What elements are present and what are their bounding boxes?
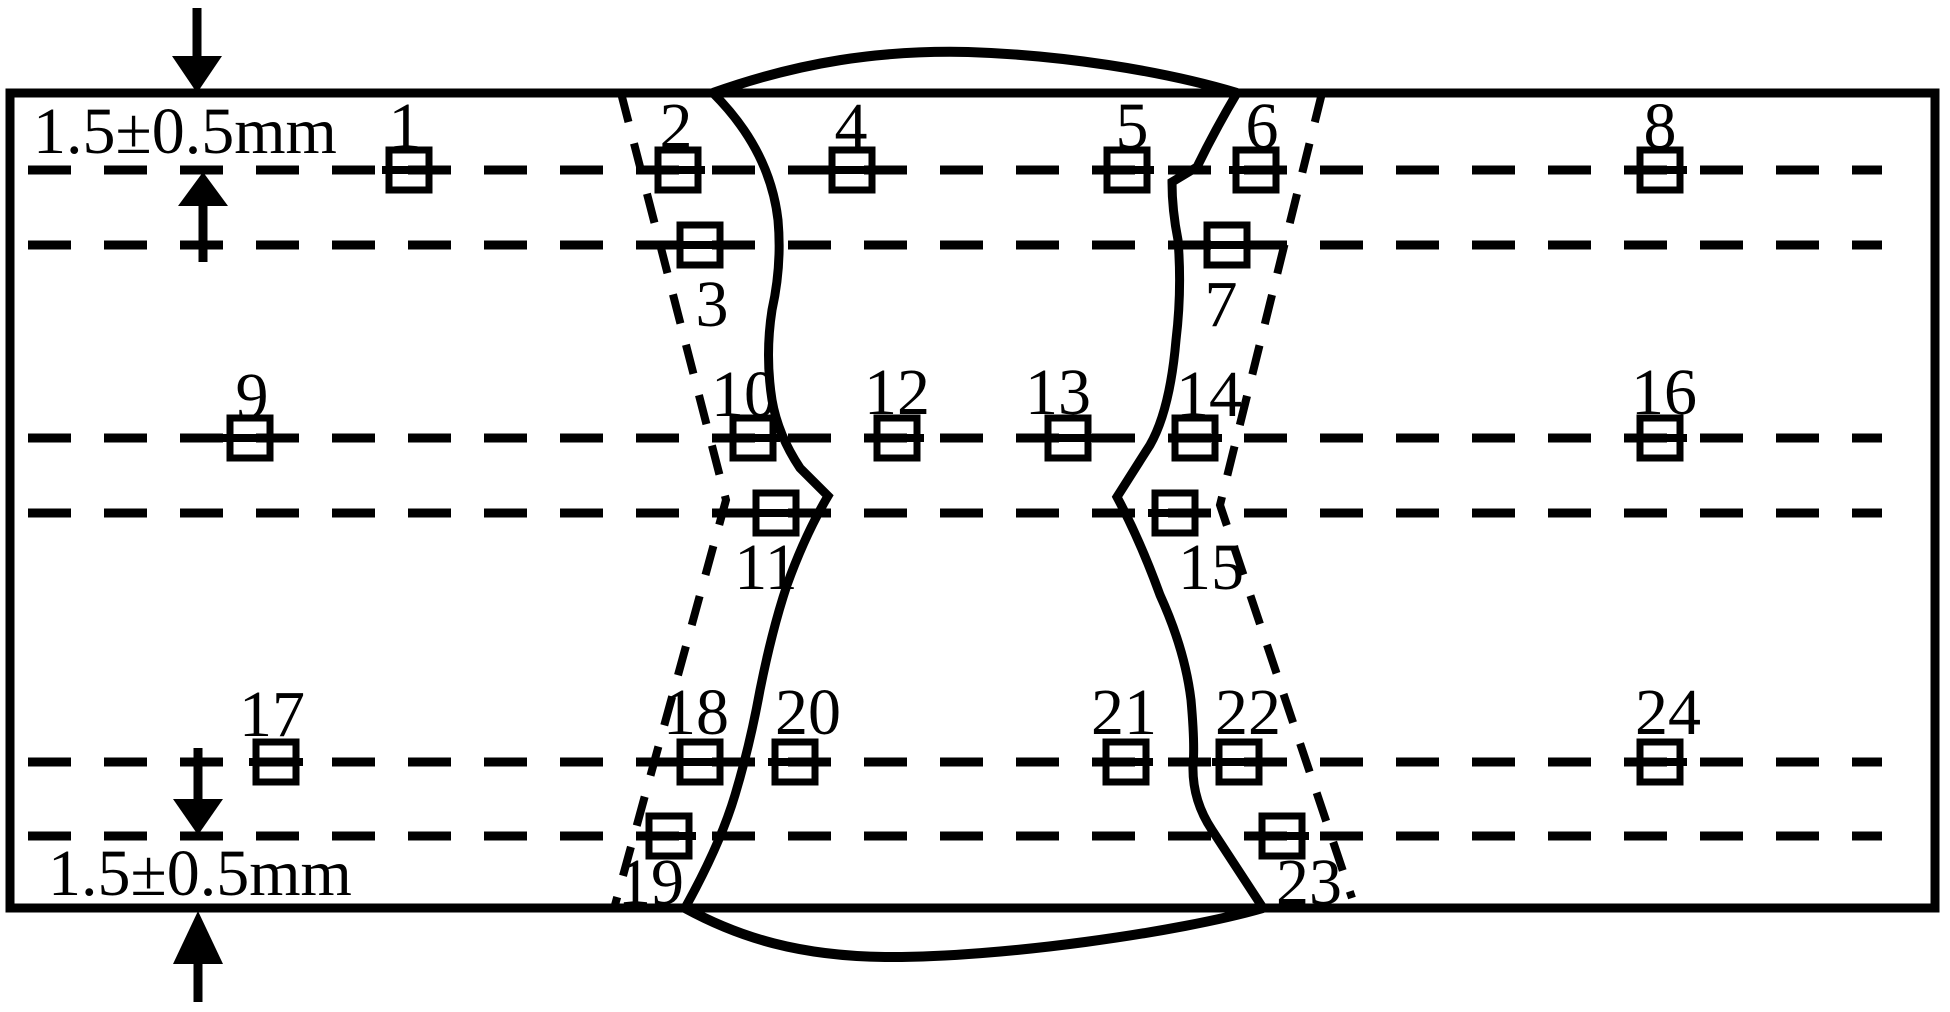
measurement-point: 10 — [711, 358, 780, 458]
measurement-point-label: 3 — [696, 268, 729, 341]
measurement-point-label: 18 — [663, 676, 729, 749]
measurement-point: 16 — [1631, 356, 1697, 458]
measurement-point: 12 — [864, 356, 930, 458]
measurement-point-label: 23 — [1276, 846, 1342, 919]
plate-outline — [10, 93, 1935, 908]
weld-cross-section-figure: 123456789101112131415161718192021222324 … — [0, 0, 1950, 1012]
measurement-point-label: 24 — [1635, 676, 1701, 749]
measurement-point: 6 — [1229, 90, 1283, 190]
measurement-point-label: 13 — [1025, 356, 1091, 429]
measurement-point-label: 14 — [1176, 358, 1242, 431]
measurement-point-label: 22 — [1215, 676, 1281, 749]
weld-cross-section-diagram: 123456789101112131415161718192021222324 … — [0, 0, 1950, 1012]
measurement-point-label: 10 — [711, 358, 777, 431]
measurement-point: 8 — [1633, 90, 1687, 190]
fusion-line-right — [1117, 93, 1263, 908]
measurement-point-label: 17 — [239, 678, 305, 751]
measurement-point-label: 11 — [734, 531, 798, 604]
dimension-arrowhead-down-icon — [172, 56, 222, 93]
measurement-point-label: 2 — [660, 90, 693, 163]
measurement-point: 4 — [825, 90, 879, 190]
measurement-point: 7 — [1200, 225, 1254, 341]
measurement-point-label: 6 — [1246, 90, 1279, 163]
measurement-point: 24 — [1633, 676, 1701, 782]
measurement-point: 15 — [1148, 493, 1244, 604]
dimension-arrowhead-up-icon — [173, 911, 223, 964]
measurement-point: 9 — [223, 360, 277, 458]
haz-boundary-right — [1220, 93, 1352, 898]
weld-cap-curve — [713, 52, 1237, 93]
dimension-arrowhead-up-icon — [178, 172, 228, 206]
measurement-point: 3 — [673, 225, 729, 341]
measurement-point-label: 15 — [1178, 531, 1244, 604]
measurement-point-label: 1 — [389, 90, 422, 163]
measurement-point: 13 — [1025, 356, 1095, 458]
dimension-label-top: 1.5±0.5mm — [33, 95, 337, 168]
measurement-points: 123456789101112131415161718192021222324 — [223, 90, 1701, 919]
measurement-point-label: 5 — [1116, 90, 1149, 163]
dimension-label-bottom: 1.5±0.5mm — [48, 837, 352, 910]
measurement-point-label: 8 — [1644, 90, 1677, 163]
measurement-point-label: 16 — [1631, 356, 1697, 429]
measurement-point-label: 12 — [864, 356, 930, 429]
measurement-point-label: 19 — [618, 846, 684, 919]
measurement-point: 2 — [651, 90, 705, 190]
measurement-point-label: 7 — [1205, 268, 1238, 341]
weld-root-curve — [685, 908, 1263, 957]
measurement-point-label: 21 — [1091, 676, 1157, 749]
measurement-point: 1 — [382, 90, 436, 190]
measurement-point-label: 4 — [835, 90, 868, 163]
scan-lines — [28, 170, 1882, 836]
measurement-point-label: 20 — [775, 676, 841, 749]
measurement-point-label: 9 — [236, 360, 269, 433]
dimension-arrowhead-down-icon — [173, 799, 223, 835]
measurement-point: 14 — [1168, 358, 1242, 458]
measurement-point: 5 — [1100, 90, 1154, 190]
